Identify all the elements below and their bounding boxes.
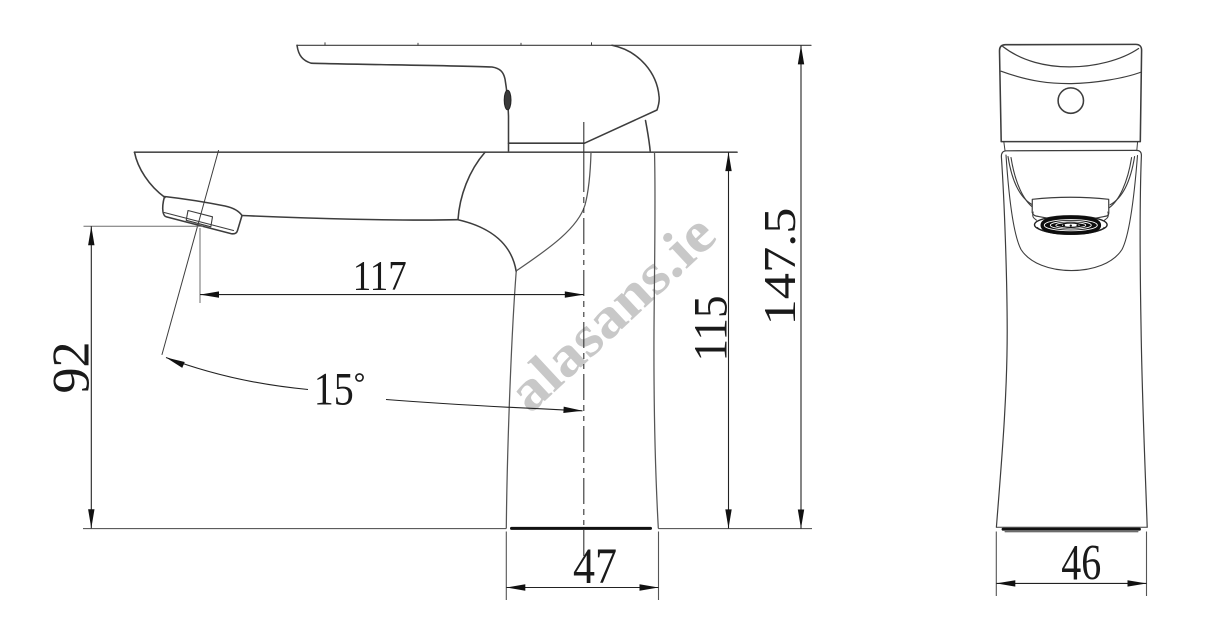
svg-text:92: 92	[43, 342, 101, 394]
svg-text:117: 117	[353, 254, 407, 300]
svg-text:46: 46	[1061, 535, 1101, 591]
svg-text:15: 15	[314, 364, 354, 416]
svg-text:47: 47	[573, 539, 617, 595]
svg-text:115: 115	[685, 296, 738, 362]
svg-text:147.5: 147.5	[754, 208, 805, 326]
